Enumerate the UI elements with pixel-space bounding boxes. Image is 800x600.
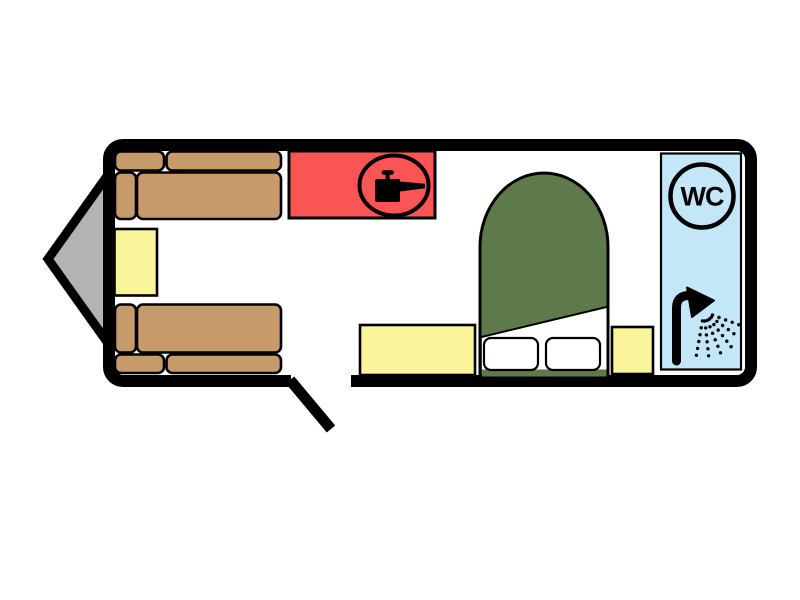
spray-dot <box>729 345 732 348</box>
spray-dot <box>727 328 730 331</box>
spray-dot <box>714 338 717 341</box>
sofa-top-backrest-left <box>115 152 164 171</box>
floorplan-canvas: WC <box>0 0 800 600</box>
sofa-top-armrest <box>115 173 136 220</box>
spray-dot <box>712 323 715 326</box>
spray-dot <box>700 326 703 329</box>
caravan-floorplan: WC <box>0 0 800 600</box>
bedside-cabinet-right <box>612 327 653 374</box>
spray-dot <box>707 354 710 357</box>
pot-lid-stem <box>386 174 390 180</box>
sofa-bottom-backrest-right <box>167 355 282 374</box>
spray-dot <box>721 334 724 337</box>
spray-dot <box>737 323 740 326</box>
sofa-bottom-armrest <box>115 305 136 353</box>
spray-dot <box>705 340 708 343</box>
spray-dot <box>721 324 724 327</box>
spray-dot <box>717 316 720 319</box>
spray-dot <box>708 325 711 328</box>
sofa-top-backrest-right <box>167 152 282 171</box>
spray-dot <box>698 333 701 336</box>
spray-dot <box>724 318 727 321</box>
pillow-right <box>546 338 600 370</box>
spray-dot <box>705 333 708 336</box>
spray-dot <box>697 340 700 343</box>
spray-dot <box>715 320 718 323</box>
front-table <box>115 229 158 296</box>
spray-dot <box>725 340 728 343</box>
spray-dot <box>696 347 699 350</box>
spray-dot <box>704 326 707 329</box>
pot-body <box>375 179 400 202</box>
spray-dot <box>716 345 719 348</box>
spray-dot <box>711 332 714 335</box>
hitch-triangle <box>48 172 110 346</box>
sofa-bottom-backrest-left <box>115 355 164 374</box>
spray-dot <box>719 351 722 354</box>
pot-lid-knob <box>382 170 394 174</box>
spray-dot <box>731 321 734 324</box>
kitchen-area <box>289 151 435 218</box>
spray-dot <box>701 319 704 322</box>
pillow-left <box>484 338 538 370</box>
bedside-cabinet-left <box>360 325 475 375</box>
sofa-top-seat <box>137 173 281 220</box>
spray-dot <box>717 328 720 331</box>
spray-dot <box>695 354 698 357</box>
sofa-bottom-seat <box>137 305 281 353</box>
spray-dot <box>706 347 709 350</box>
entry-door-leaf <box>290 380 331 429</box>
spray-dot <box>732 332 735 335</box>
bathroom-area: WC <box>661 154 741 370</box>
wc-label: WC <box>681 182 724 212</box>
